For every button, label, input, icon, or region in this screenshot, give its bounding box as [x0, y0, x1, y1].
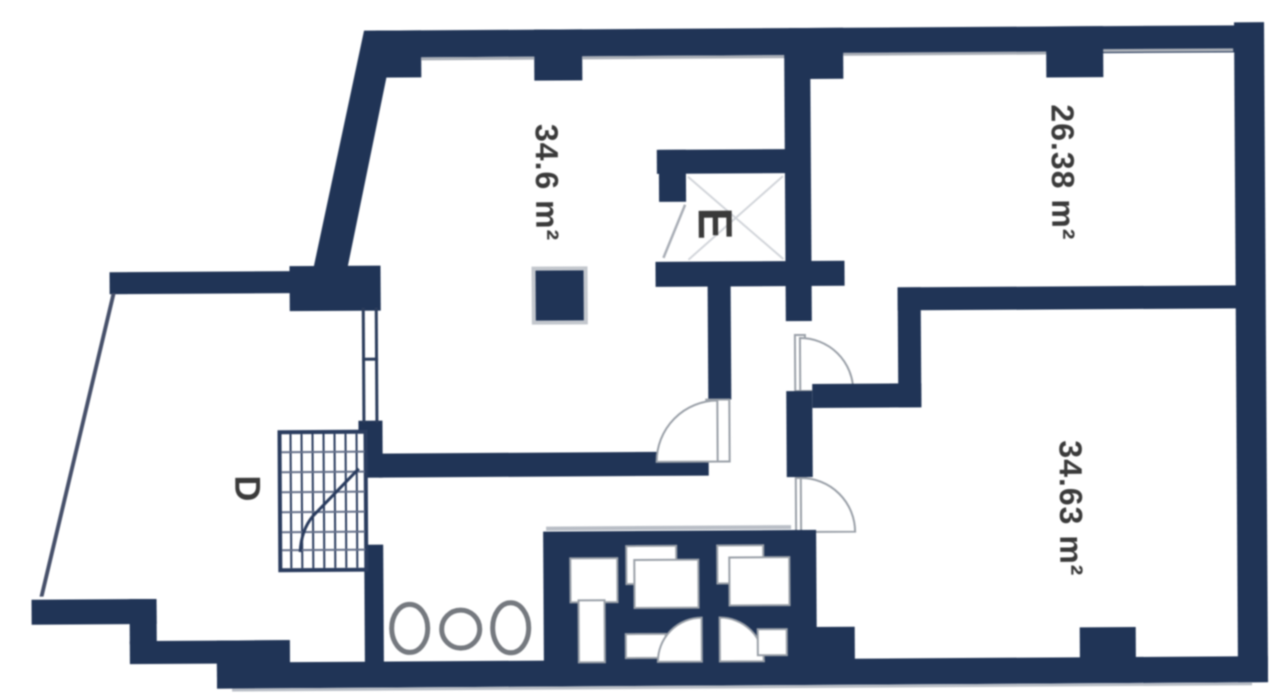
svg-text:26.38 m²: 26.38 m² [1045, 104, 1082, 240]
svg-text:E: E [688, 207, 741, 239]
svg-text:34.63 m²: 34.63 m² [1053, 440, 1090, 576]
svg-text:D: D [227, 475, 268, 501]
svg-text:34.6 m²: 34.6 m² [529, 124, 566, 241]
